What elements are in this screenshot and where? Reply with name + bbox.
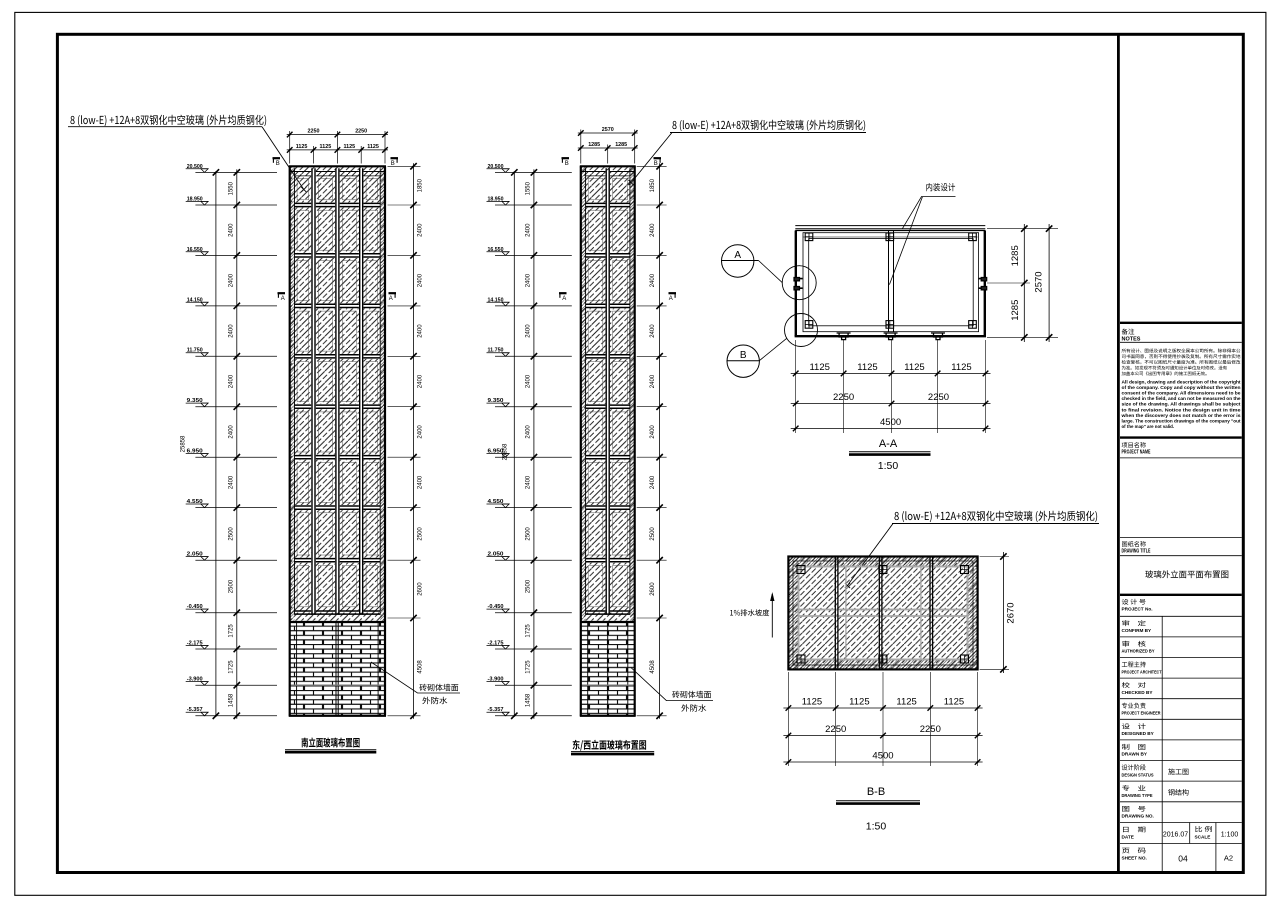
svg-text:1125: 1125 xyxy=(896,696,916,707)
svg-text:2600: 2600 xyxy=(650,582,656,596)
svg-text:2400: 2400 xyxy=(650,374,656,388)
svg-text:1125: 1125 xyxy=(320,144,332,150)
svg-text:1125: 1125 xyxy=(296,144,308,150)
svg-text:B: B xyxy=(276,161,280,167)
svg-text:2400: 2400 xyxy=(525,223,531,237)
svg-text:2500: 2500 xyxy=(525,579,531,593)
svg-text:1458: 1458 xyxy=(525,693,531,707)
svg-text:All design, drawing and descri: All design, drawing and description of t… xyxy=(1122,379,1242,384)
svg-text:PROJECT ENGINEER: PROJECT ENGINEER xyxy=(1122,711,1161,716)
svg-text:1285: 1285 xyxy=(1010,245,1021,266)
svg-text:2400: 2400 xyxy=(228,475,234,489)
svg-text:2400: 2400 xyxy=(418,273,424,287)
svg-text:2600: 2600 xyxy=(418,582,424,596)
svg-text:2400: 2400 xyxy=(650,223,656,237)
svg-text:1725: 1725 xyxy=(228,624,234,638)
svg-text:2400: 2400 xyxy=(418,324,424,338)
svg-text:1550: 1550 xyxy=(525,181,531,195)
svg-text:1850: 1850 xyxy=(650,178,656,192)
svg-text:1:100: 1:100 xyxy=(1221,832,1239,839)
svg-text:4500: 4500 xyxy=(880,417,901,428)
svg-text:DESIGN STATUS: DESIGN STATUS xyxy=(1122,772,1154,777)
svg-text:1125: 1125 xyxy=(857,362,877,373)
svg-text:1125: 1125 xyxy=(343,144,355,150)
svg-text:2500: 2500 xyxy=(228,527,234,541)
svg-text:2400: 2400 xyxy=(650,475,656,489)
svg-text:2570: 2570 xyxy=(602,127,614,133)
svg-text:1725: 1725 xyxy=(228,660,234,674)
svg-text:DATE: DATE xyxy=(1122,834,1134,839)
svg-text:SCALE: SCALE xyxy=(1195,834,1211,839)
svg-text:2400: 2400 xyxy=(525,425,531,439)
svg-text:SHEET NO.: SHEET NO. xyxy=(1122,855,1147,860)
svg-text:1125: 1125 xyxy=(809,362,829,373)
svg-text:1125: 1125 xyxy=(904,362,924,373)
svg-text:4500: 4500 xyxy=(872,750,893,761)
svg-text:large. The construction drawin: large. The construction drawings of the … xyxy=(1122,419,1242,424)
svg-text:1458: 1458 xyxy=(228,693,234,707)
svg-text:25858: 25858 xyxy=(503,443,509,460)
svg-text:DRAWING NO.: DRAWING NO. xyxy=(1122,814,1154,819)
svg-text:2500: 2500 xyxy=(525,527,531,541)
svg-text:2500: 2500 xyxy=(228,579,234,593)
svg-text:2500: 2500 xyxy=(650,527,656,541)
svg-text:A: A xyxy=(281,296,285,302)
svg-text:2570: 2570 xyxy=(1034,271,1045,292)
svg-text:2400: 2400 xyxy=(650,324,656,338)
svg-text:1125: 1125 xyxy=(849,696,869,707)
svg-text:A: A xyxy=(669,296,673,302)
svg-text:DRAWING TYPE: DRAWING TYPE xyxy=(1122,793,1153,798)
svg-text:A-A: A-A xyxy=(879,438,898,450)
svg-text:1:50: 1:50 xyxy=(866,821,887,833)
svg-text:DRAWING TITLE: DRAWING TITLE xyxy=(1122,548,1151,554)
svg-text:2670: 2670 xyxy=(1006,602,1017,623)
svg-text:1850: 1850 xyxy=(418,178,424,192)
svg-text:PROJECT NAME: PROJECT NAME xyxy=(1122,449,1151,455)
svg-text:size of the drawing. All drawi: size of the drawing. All drawings shall … xyxy=(1122,402,1242,407)
svg-text:2400: 2400 xyxy=(228,223,234,237)
svg-text:1125: 1125 xyxy=(944,696,964,707)
svg-text:2250: 2250 xyxy=(833,392,854,403)
svg-text:A: A xyxy=(562,296,566,302)
svg-text:2400: 2400 xyxy=(228,273,234,287)
svg-text:of the map" are not valid.: of the map" are not valid. xyxy=(1122,424,1175,429)
svg-text:2400: 2400 xyxy=(525,324,531,338)
svg-text:2400: 2400 xyxy=(228,324,234,338)
svg-text:to final revision. Notice the: to final revision. Notice the design uni… xyxy=(1122,407,1242,412)
svg-text:1285: 1285 xyxy=(588,142,600,148)
svg-text:4508: 4508 xyxy=(418,660,424,674)
svg-text:2400: 2400 xyxy=(525,374,531,388)
svg-text:2250: 2250 xyxy=(355,129,367,135)
svg-text:consent of the company. All di: consent of the company. All dimensions n… xyxy=(1122,391,1242,396)
svg-text:CONFIRM BY: CONFIRM BY xyxy=(1122,628,1153,633)
svg-text:1125: 1125 xyxy=(802,696,822,707)
svg-text:NOTES: NOTES xyxy=(1122,337,1141,343)
svg-text:1550: 1550 xyxy=(228,181,234,195)
svg-text:2400: 2400 xyxy=(525,273,531,287)
svg-text:2250: 2250 xyxy=(825,724,846,735)
svg-text:1:50: 1:50 xyxy=(878,460,899,472)
svg-text:2500: 2500 xyxy=(418,527,424,541)
svg-text:B: B xyxy=(565,161,569,167)
svg-text:2400: 2400 xyxy=(650,273,656,287)
svg-text:1125: 1125 xyxy=(951,362,971,373)
svg-text:AUTHORIZED BY: AUTHORIZED BY xyxy=(1122,649,1156,654)
svg-text:PROJECT No.: PROJECT No. xyxy=(1122,607,1153,612)
svg-text:2400: 2400 xyxy=(525,475,531,489)
svg-text:1285: 1285 xyxy=(615,142,627,148)
svg-text:1285: 1285 xyxy=(1010,300,1021,321)
svg-text:1725: 1725 xyxy=(525,624,531,638)
svg-text:1125: 1125 xyxy=(367,144,379,150)
svg-text:CHECKED BY: CHECKED BY xyxy=(1122,690,1154,695)
svg-text:2250: 2250 xyxy=(920,724,941,735)
svg-text:2400: 2400 xyxy=(418,374,424,388)
svg-text:A: A xyxy=(389,296,393,302)
svg-text:B: B xyxy=(740,350,747,361)
svg-text:2250: 2250 xyxy=(308,129,320,135)
svg-text:checked in the field, and can: checked in the field, and can not be mea… xyxy=(1122,396,1242,401)
svg-text:DESIGNED BY: DESIGNED BY xyxy=(1122,731,1155,736)
svg-text:1725: 1725 xyxy=(525,660,531,674)
svg-text:2400: 2400 xyxy=(228,374,234,388)
svg-text:2250: 2250 xyxy=(928,392,949,403)
svg-text:DRAWN BY: DRAWN BY xyxy=(1122,752,1148,757)
svg-text:B-B: B-B xyxy=(867,786,885,798)
svg-text:2400: 2400 xyxy=(650,425,656,439)
svg-text:2400: 2400 xyxy=(228,425,234,439)
svg-text:A2: A2 xyxy=(1224,854,1233,863)
svg-text:2400: 2400 xyxy=(418,475,424,489)
svg-text:of the company. Copy and copy: of the company. Copy and copy without th… xyxy=(1122,385,1241,390)
svg-text:A: A xyxy=(734,250,741,261)
svg-text:2400: 2400 xyxy=(418,425,424,439)
svg-text:PROJECT ARCHITECT: PROJECT ARCHITECT xyxy=(1122,669,1162,674)
svg-text:4508: 4508 xyxy=(650,660,656,674)
svg-text:2400: 2400 xyxy=(418,223,424,237)
svg-text:25858: 25858 xyxy=(181,435,187,452)
svg-text:2016.07: 2016.07 xyxy=(1163,832,1188,839)
svg-text:04: 04 xyxy=(1178,854,1188,864)
svg-text:when the discovery does not ma: when the discovery does not match or the… xyxy=(1120,413,1241,418)
